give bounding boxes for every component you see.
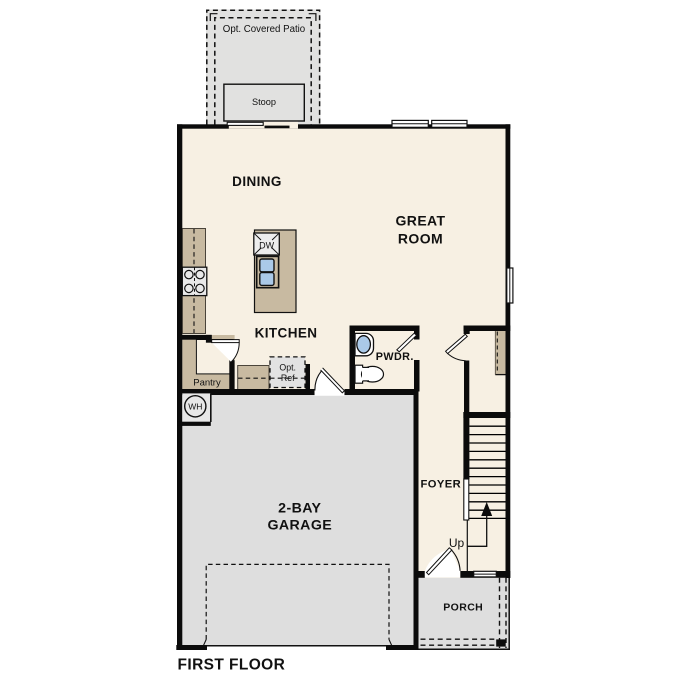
svg-text:GARAGE: GARAGE: [267, 518, 332, 534]
svg-text:KITCHEN: KITCHEN: [255, 326, 318, 341]
svg-text:Stoop: Stoop: [252, 97, 276, 107]
svg-text:ROOM: ROOM: [398, 230, 443, 246]
svg-text:GREAT: GREAT: [396, 212, 446, 228]
svg-text:Pantry: Pantry: [193, 378, 221, 389]
svg-text:WH: WH: [188, 402, 202, 412]
svg-text:PORCH: PORCH: [443, 602, 483, 614]
svg-text:FOYER: FOYER: [421, 478, 462, 490]
svg-text:FIRST FLOOR: FIRST FLOOR: [178, 656, 286, 673]
svg-text:Up: Up: [449, 536, 465, 550]
svg-text:DW: DW: [259, 241, 274, 251]
svg-text:DINING: DINING: [232, 174, 282, 189]
svg-text:2-BAY: 2-BAY: [278, 501, 321, 517]
svg-text:Opt. Covered Patio: Opt. Covered Patio: [223, 24, 305, 35]
svg-text:PWDR.: PWDR.: [376, 351, 414, 363]
svg-text:Opt.: Opt.: [279, 363, 296, 373]
